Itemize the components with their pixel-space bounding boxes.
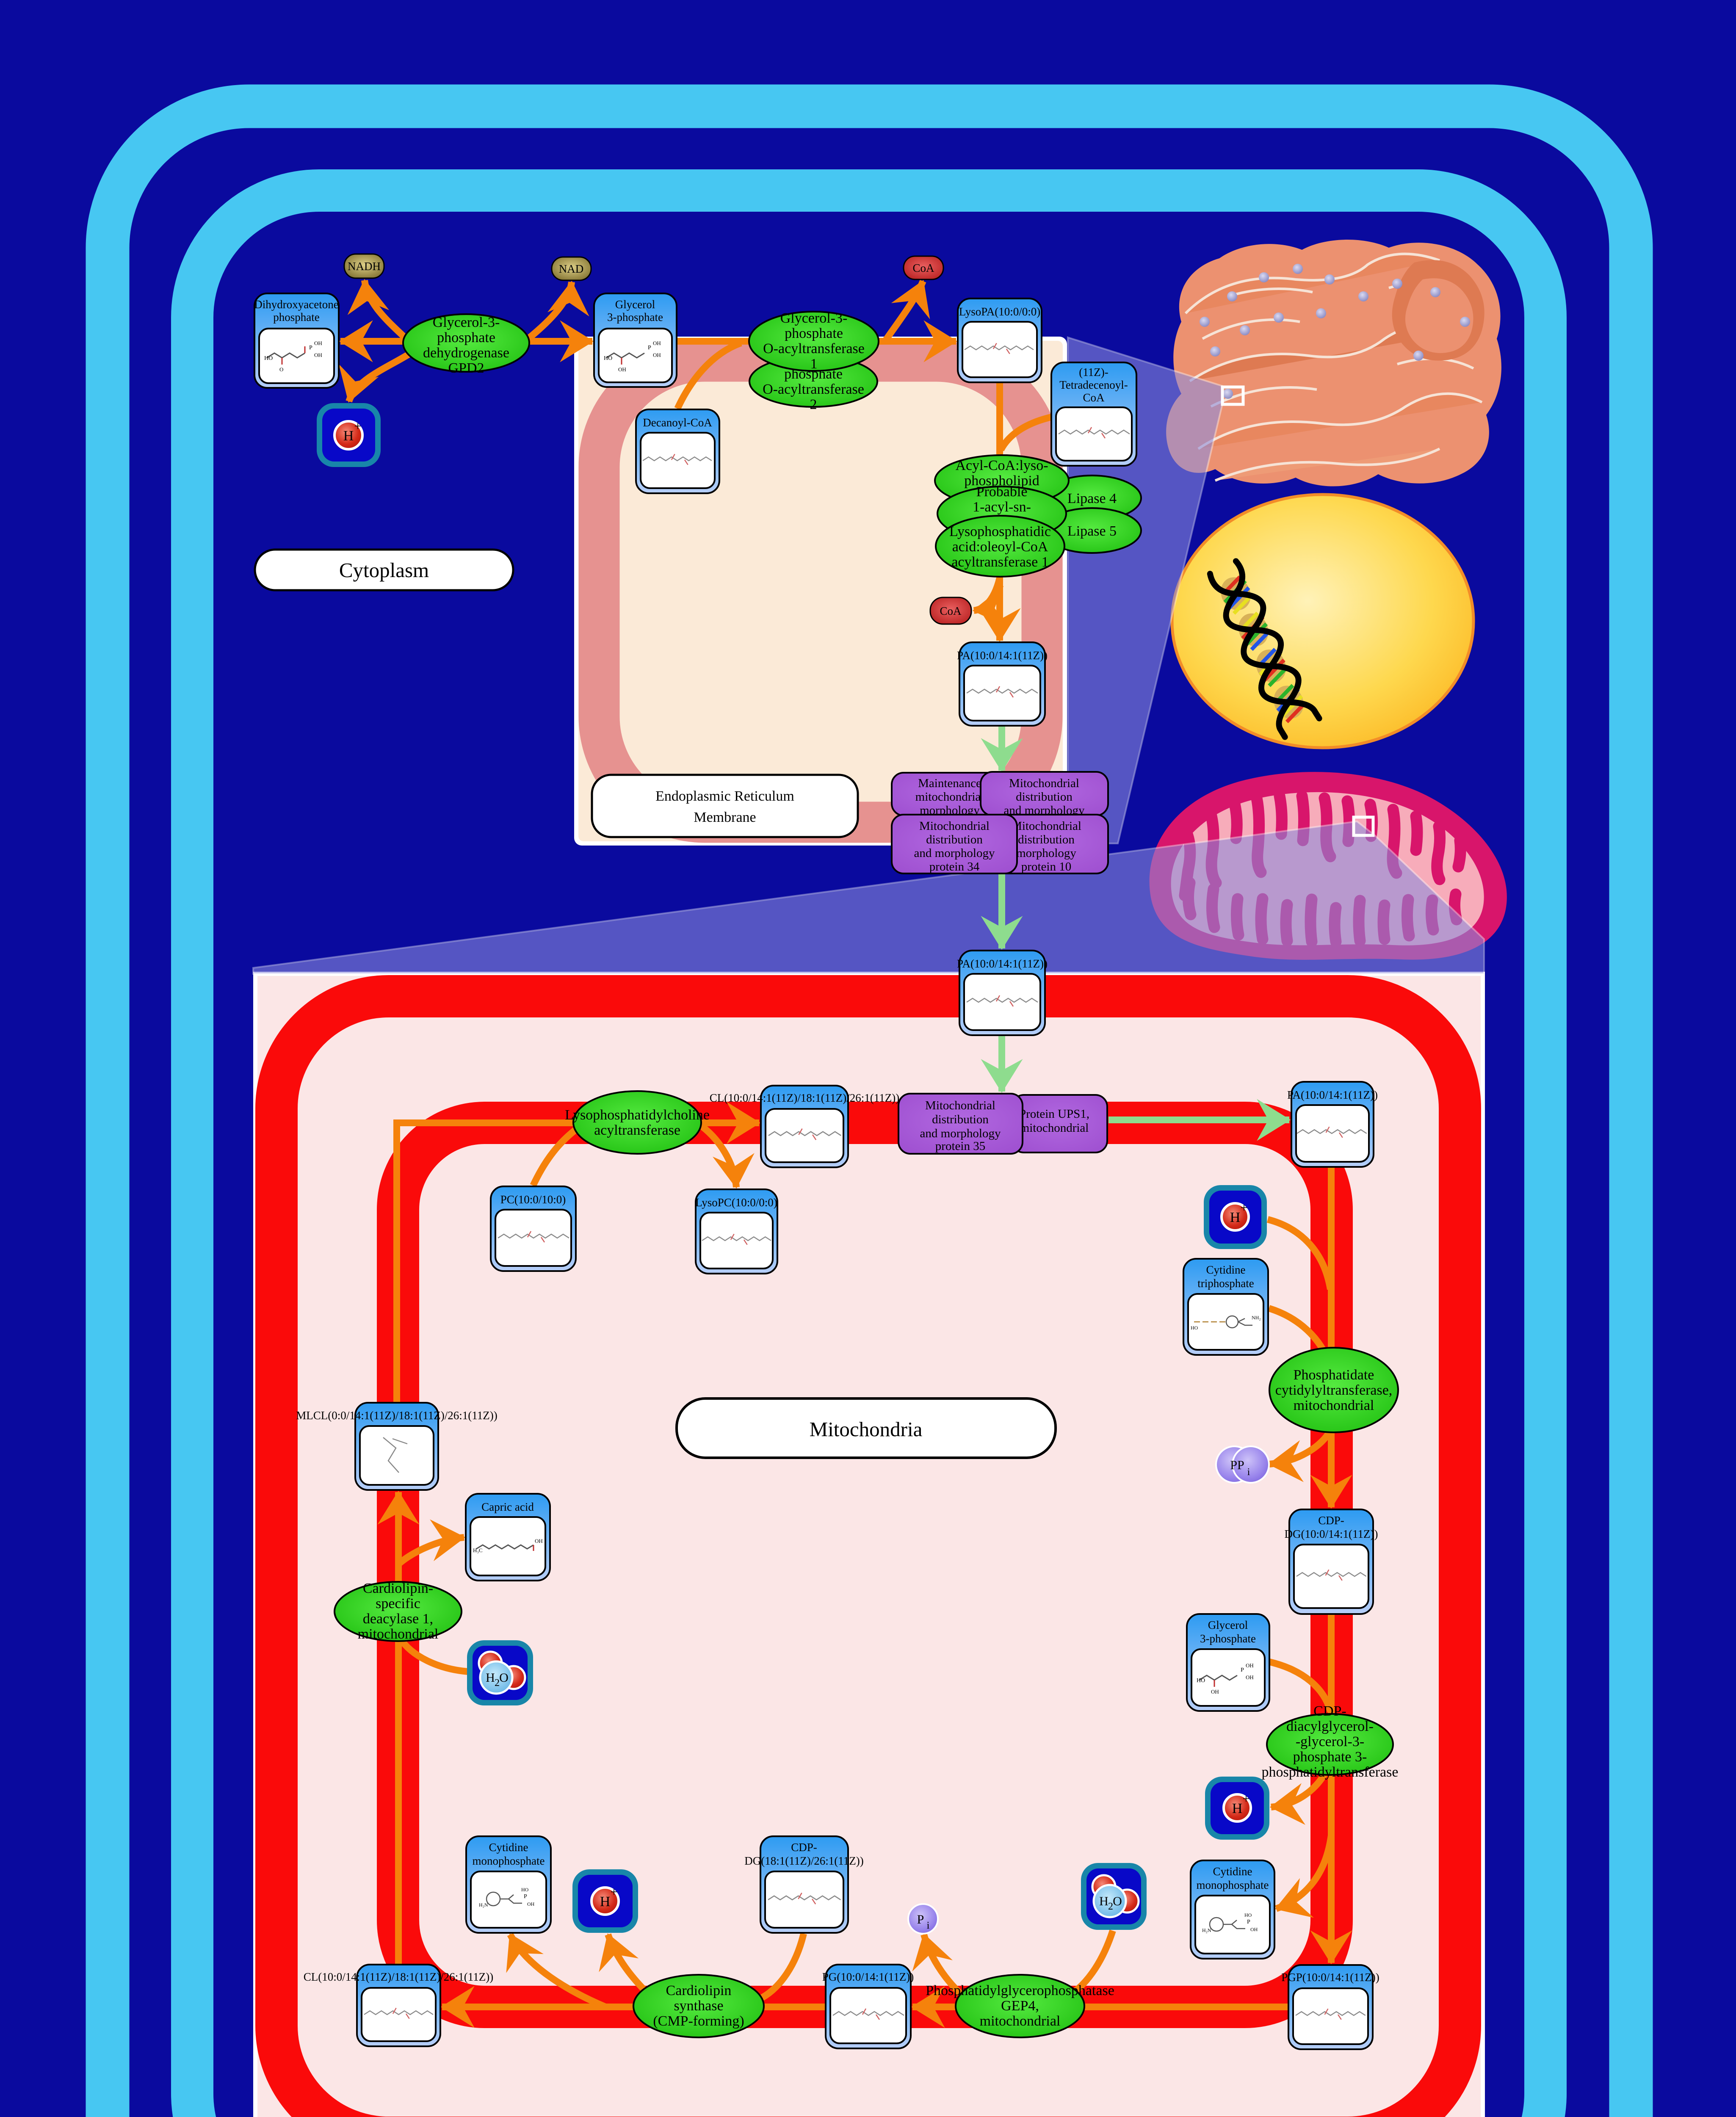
svg-text:monophosphate: monophosphate <box>1197 1879 1269 1891</box>
svg-text:+: + <box>1243 1792 1250 1806</box>
svg-text:mitochondrial: mitochondrial <box>980 2013 1061 2029</box>
svg-text:acyltransferase: acyltransferase <box>594 1122 680 1138</box>
svg-text:H: H <box>1230 1210 1241 1225</box>
svg-text:(CMP-forming): (CMP-forming) <box>653 2013 744 2029</box>
svg-text:Lysophosphatidic: Lysophosphatidic <box>949 524 1051 539</box>
svg-text:CDP-: CDP- <box>1313 1703 1346 1719</box>
svg-text:H: H <box>600 1894 611 1910</box>
svg-text:Lipase 4: Lipase 4 <box>1067 491 1117 506</box>
svg-text:PC(10:0/10:0): PC(10:0/10:0) <box>500 1193 566 1206</box>
svg-text:distribution: distribution <box>932 1113 989 1126</box>
svg-text:CL(10:0/14:1(11Z)/18:1(11Z)/26: CL(10:0/14:1(11Z)/18:1(11Z)/26:1(11Z)) <box>710 1092 899 1104</box>
svg-text:CL(10:0/14:1(11Z)/18:1(11Z)/26: CL(10:0/14:1(11Z)/18:1(11Z)/26:1(11Z)) <box>304 1971 493 1983</box>
svg-text:protein 35: protein 35 <box>935 1139 985 1153</box>
svg-text:+: + <box>611 1885 618 1899</box>
svg-text:distribution: distribution <box>926 833 983 846</box>
svg-text:GPD2: GPD2 <box>448 360 484 376</box>
svg-text:PA(10:0/14:1(11Z)): PA(10:0/14:1(11Z)) <box>957 649 1048 662</box>
svg-text:protein 10: protein 10 <box>1021 860 1071 873</box>
svg-text:HO: HO <box>604 355 612 362</box>
svg-text:cytidylyltransferase,: cytidylyltransferase, <box>1275 1382 1393 1398</box>
svg-text:CoA: CoA <box>940 605 962 617</box>
svg-text:mitochondrial: mitochondrial <box>1294 1398 1374 1413</box>
svg-text:OH: OH <box>618 366 626 373</box>
svg-text:H₃C: H₃C <box>473 1547 483 1553</box>
svg-text:GEP4,: GEP4, <box>1001 1998 1039 2014</box>
svg-text:specific: specific <box>376 1596 420 1611</box>
svg-text:LysoPA(10:0/0:0): LysoPA(10:0/0:0) <box>959 305 1041 318</box>
svg-text:-glycerol-3-: -glycerol-3- <box>1296 1734 1364 1749</box>
svg-text:synthase: synthase <box>674 1998 723 2014</box>
svg-text:mitochondrial: mitochondrial <box>358 1626 439 1642</box>
svg-text:P: P <box>1247 1919 1250 1925</box>
svg-text:HO: HO <box>264 355 273 362</box>
svg-text:DG(18:1(11Z)/26:1(11Z)): DG(18:1(11Z)/26:1(11Z)) <box>744 1854 863 1867</box>
svg-text:dehydrogenase: dehydrogenase <box>423 345 509 361</box>
svg-text:i: i <box>927 1920 930 1931</box>
svg-text:Lipase 5: Lipase 5 <box>1067 523 1117 539</box>
svg-text:Glycerol-3-: Glycerol-3- <box>780 310 848 326</box>
svg-text:deacylase 1,: deacylase 1, <box>363 1611 433 1627</box>
svg-text:Protein UPS1,: Protein UPS1, <box>1019 1107 1089 1121</box>
svg-text:O-acyltransferase: O-acyltransferase <box>763 381 864 397</box>
svg-text:P: P <box>524 1893 527 1900</box>
svg-text:HO: HO <box>1197 1678 1205 1684</box>
svg-text:Cardiolipin: Cardiolipin <box>666 1983 732 1998</box>
svg-text:distribution: distribution <box>1016 790 1073 804</box>
svg-text:P: P <box>309 345 312 351</box>
svg-text:OH: OH <box>535 1538 543 1544</box>
svg-text:P: P <box>1241 1667 1244 1673</box>
svg-text:Phosphatidate: Phosphatidate <box>1294 1367 1374 1383</box>
svg-text:morphology: morphology <box>1016 846 1076 860</box>
svg-text:OH: OH <box>1211 1689 1219 1695</box>
svg-text:OH: OH <box>653 352 661 358</box>
svg-text:HO: HO <box>521 1887 529 1893</box>
svg-text:acyltransferase 1: acyltransferase 1 <box>951 554 1048 570</box>
svg-text:i: i <box>1247 1467 1250 1478</box>
svg-text:OH: OH <box>1250 1926 1258 1932</box>
svg-text:and morphology: and morphology <box>914 846 995 860</box>
svg-text:protein 34: protein 34 <box>929 860 980 873</box>
svg-text:phosphate: phosphate <box>785 326 843 341</box>
svg-text:3-phosphate: 3-phosphate <box>1200 1632 1256 1645</box>
svg-text:Cytidine: Cytidine <box>489 1841 528 1854</box>
svg-text:OH: OH <box>653 340 661 346</box>
svg-text:and morphology: and morphology <box>920 1127 1001 1140</box>
svg-text:PA(10:0/14:1(11Z)): PA(10:0/14:1(11Z)) <box>1287 1089 1378 1101</box>
svg-text:PGP(10:0/14:1(11Z)): PGP(10:0/14:1(11Z)) <box>1281 1971 1379 1984</box>
svg-text:LysoPC(10:0/0:0): LysoPC(10:0/0:0) <box>695 1196 777 1209</box>
svg-text:CoA: CoA <box>1083 391 1105 404</box>
svg-text:DG(10:0/14:1(11Z)): DG(10:0/14:1(11Z)) <box>1285 1528 1378 1540</box>
svg-text:+: + <box>1241 1201 1248 1215</box>
svg-text:CoA: CoA <box>912 262 934 274</box>
svg-text:OH: OH <box>314 340 322 346</box>
svg-text:Mitochondrial: Mitochondrial <box>925 1099 995 1112</box>
svg-text:OH: OH <box>314 352 322 358</box>
svg-text:triphosphate: triphosphate <box>1197 1277 1254 1290</box>
svg-text:P: P <box>648 345 651 351</box>
svg-text:PG(10:0/14:1(11Z)): PG(10:0/14:1(11Z)) <box>822 1971 914 1983</box>
svg-text:1-acyl-sn-: 1-acyl-sn- <box>973 499 1031 515</box>
svg-text:Probable: Probable <box>976 484 1028 500</box>
svg-text:acid:oleoyl-CoA: acid:oleoyl-CoA <box>952 539 1048 555</box>
svg-text:distribution: distribution <box>1018 833 1075 846</box>
svg-text:OH: OH <box>1246 1662 1254 1669</box>
svg-text:H: H <box>1099 1894 1108 1908</box>
svg-text:Dihydroxyacetone: Dihydroxyacetone <box>254 298 338 311</box>
svg-text:+: + <box>354 419 362 433</box>
svg-text:Mitochondrial: Mitochondrial <box>1011 819 1081 833</box>
svg-text:Cytidine: Cytidine <box>1213 1865 1252 1878</box>
svg-text:Membrane: Membrane <box>694 810 756 825</box>
svg-text:MLCL(0:0/14:1(11Z)/18:1(11Z)/2: MLCL(0:0/14:1(11Z)/18:1(11Z)/26:1(11Z)) <box>296 1409 497 1422</box>
svg-text:phosphate: phosphate <box>273 311 319 323</box>
svg-text:Cytoplasm: Cytoplasm <box>339 558 429 582</box>
svg-text:PP: PP <box>1230 1458 1244 1472</box>
svg-text:HO: HO <box>1244 1912 1252 1918</box>
svg-text:3-phosphate: 3-phosphate <box>607 311 663 323</box>
svg-text:Glycerol-3-: Glycerol-3- <box>433 315 500 330</box>
svg-text:CDP-: CDP- <box>1318 1514 1344 1527</box>
svg-text:Lysophosphatidylcholine: Lysophosphatidylcholine <box>565 1107 710 1123</box>
svg-text:(11Z)-: (11Z)- <box>1079 366 1108 379</box>
svg-text:NAD: NAD <box>559 263 584 275</box>
svg-text:Decanoyl-CoA: Decanoyl-CoA <box>643 416 712 429</box>
svg-text:Endoplasmic Reticulum: Endoplasmic Reticulum <box>655 788 794 804</box>
svg-text:mitochondrial: mitochondrial <box>1020 1121 1089 1135</box>
svg-text:O: O <box>499 1671 509 1685</box>
svg-text:Mitochondria: Mitochondria <box>810 1418 923 1441</box>
svg-text:H: H <box>343 428 354 444</box>
svg-text:diacylglycerol-: diacylglycerol- <box>1286 1719 1374 1734</box>
svg-text:Cytidine: Cytidine <box>1206 1263 1246 1276</box>
svg-text:H₂N: H₂N <box>1202 1927 1211 1933</box>
svg-text:Mitochondrial: Mitochondrial <box>919 819 990 833</box>
svg-text:phosphatidyltransferase: phosphatidyltransferase <box>1262 1764 1399 1780</box>
svg-text:Cardiolipin-: Cardiolipin- <box>363 1581 433 1596</box>
svg-text:CDP-: CDP- <box>791 1841 817 1854</box>
svg-text:Capric acid: Capric acid <box>481 1501 534 1513</box>
svg-text:NADH: NADH <box>348 260 381 273</box>
svg-text:O: O <box>1113 1894 1122 1908</box>
svg-text:HO: HO <box>1191 1325 1198 1331</box>
svg-text:O: O <box>279 366 283 373</box>
svg-text:phosphate: phosphate <box>437 330 495 345</box>
svg-text:H: H <box>1232 1801 1243 1816</box>
svg-text:mitochondrial: mitochondrial <box>915 790 984 804</box>
svg-text:Mitochondrial: Mitochondrial <box>1009 777 1079 790</box>
svg-text:P: P <box>917 1912 924 1926</box>
svg-text:Maintenance: Maintenance <box>918 777 981 790</box>
svg-text:monophosphate: monophosphate <box>473 1854 545 1867</box>
svg-text:Acyl-CoA:lyso-: Acyl-CoA:lyso- <box>955 458 1048 473</box>
svg-text:Phosphatidylglycerophosphatase: Phosphatidylglycerophosphatase <box>926 1983 1114 1998</box>
svg-text:Glycerol: Glycerol <box>615 298 655 311</box>
svg-text:H₂N: H₂N <box>479 1902 488 1908</box>
svg-text:PA(10:0/14:1(11Z)): PA(10:0/14:1(11Z)) <box>957 957 1048 970</box>
svg-text:H: H <box>486 1671 495 1685</box>
svg-text:OH: OH <box>527 1901 535 1907</box>
svg-text:Glycerol: Glycerol <box>1208 1619 1248 1631</box>
svg-text:OH: OH <box>1246 1674 1254 1680</box>
svg-text:NH₂: NH₂ <box>1252 1315 1261 1321</box>
svg-text:phosphate 3-: phosphate 3- <box>1293 1749 1367 1765</box>
svg-text:2: 2 <box>810 397 817 412</box>
svg-text:1: 1 <box>810 356 818 372</box>
svg-text:Tetradecenoyl-: Tetradecenoyl- <box>1059 379 1128 391</box>
svg-text:O-acyltransferase: O-acyltransferase <box>763 341 865 357</box>
